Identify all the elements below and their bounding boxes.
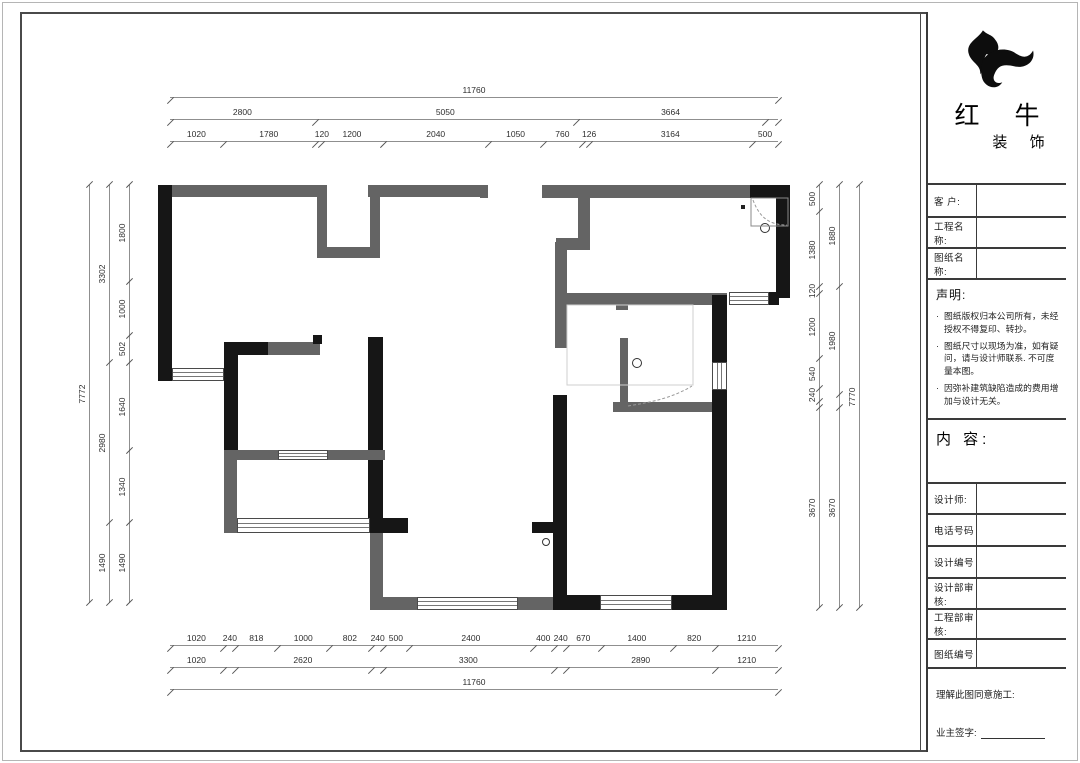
dimension-value: 3664 [576, 106, 765, 118]
dimension-value: 1880 [827, 227, 837, 246]
dimension-segment: 1000 [116, 282, 129, 336]
statement-item: · 图纸版权归本公司所有，未经授权不得复印、转抄。 [936, 310, 1060, 336]
dimension-segment: 3164 [589, 128, 753, 141]
dimension-value: 1400 [601, 632, 673, 644]
title-block: 红 牛 装 饰 客 户: 工程名称: 图纸名称: 声明: · 图纸版权归本公司所… [926, 12, 1066, 752]
dimension-value: 1490 [117, 553, 127, 572]
dimension-segment: 11760 [170, 676, 778, 689]
dimension-value: 1050 [488, 128, 542, 140]
dimension-value: 2890 [566, 654, 715, 666]
wall-structural [158, 185, 172, 381]
wall-existing [368, 185, 488, 197]
dimension-segment: 1880 [826, 185, 839, 287]
statement-item: · 图纸尺寸以现场为准，如有疑问，请与设计师联系. 不可度量本图。 [936, 340, 1060, 378]
field-label: 电话号码 [928, 515, 977, 545]
field-value-phone [977, 515, 1066, 545]
dimension-value: 1980 [827, 332, 837, 351]
wall-existing [560, 293, 727, 305]
dimension-row-top: 11760 [170, 84, 778, 98]
dimension-row-bottom: 11760 [170, 676, 778, 690]
dimension-segment: 3670 [806, 408, 819, 608]
wall-structural [368, 337, 383, 533]
field-value-designer [977, 484, 1066, 513]
dimension-value: 3302 [97, 264, 107, 283]
dimension-value: 1200 [321, 128, 383, 140]
dimension-segment: 500 [806, 185, 819, 212]
dimension-value: 1490 [97, 553, 107, 572]
window-symbol [712, 362, 727, 390]
dimension-segment: 3670 [826, 408, 839, 608]
dimension-row-top: 102017801201200204010507601263164500 [170, 128, 778, 142]
wall-structural [672, 595, 727, 610]
wall-structural [532, 522, 553, 533]
dimension-value: 3164 [589, 128, 753, 140]
statement-box: 声明: · 图纸版权归本公司所有，未经授权不得复印、转抄。 · 图纸尺寸以现场为… [928, 278, 1066, 418]
dimension-value: 240 [807, 388, 817, 402]
dimension-segment: 1400 [601, 632, 673, 645]
dimension-segment: 1490 [116, 523, 129, 603]
dimension-value: 11760 [170, 676, 778, 688]
dimension-segment: 240 [806, 389, 819, 402]
window-symbol [172, 368, 224, 381]
dimension-segment: 1980 [826, 287, 839, 395]
dimension-segment: 240 [371, 632, 383, 645]
field-label: 设计部审核: [928, 579, 977, 608]
dimension-row-bottom: 1020240818100080224050024004002406701400… [170, 632, 778, 646]
wall-structural [553, 395, 567, 610]
wall-existing [620, 338, 628, 408]
dimension-row-bottom: 10202620330028901210 [170, 654, 778, 668]
dimension-segment: 7770 [846, 185, 859, 608]
field-row-customer: 客 户: [928, 183, 1066, 216]
dimension-segment: 2890 [566, 654, 715, 667]
dimension-value: 802 [329, 632, 370, 644]
bull-logo-icon [953, 26, 1041, 98]
dimension-column-left: 330229801490 [96, 185, 110, 603]
dimension-row-top: 280050503664 [170, 106, 778, 120]
dimension-value: 502 [117, 342, 127, 356]
dimension-segment: 11760 [170, 84, 778, 97]
field-row-drawing-name: 图纸名称: [928, 247, 1066, 278]
field-label: 客 户: [928, 185, 977, 216]
dimension-segment: 3300 [383, 654, 554, 667]
dimension-value: 1780 [223, 128, 315, 140]
wall-structural [238, 342, 270, 355]
dimension-segment: 802 [329, 632, 370, 645]
dimension-segment: 2040 [383, 128, 488, 141]
field-value-project-name [977, 218, 1066, 247]
wall-structural [368, 518, 408, 533]
content-label: 内 容: [936, 431, 990, 448]
dimension-value: 240 [371, 632, 383, 644]
dimension-value: 400 [533, 632, 554, 644]
dimension-segment: 500 [383, 632, 409, 645]
dimension-value: 3300 [383, 654, 554, 666]
company-name: 红 牛 [942, 103, 1066, 129]
dimension-value: 2980 [97, 433, 107, 452]
dimension-value: 820 [673, 632, 715, 644]
dimension-value: 670 [566, 632, 601, 644]
dimension-segment: 818 [235, 632, 277, 645]
dimension-value: 7772 [77, 385, 87, 404]
field-label: 图纸编号 [928, 640, 977, 667]
wall-existing [172, 185, 327, 197]
floor-drain [760, 223, 770, 233]
field-value-drawing-name [977, 249, 1066, 278]
dimension-segment: 2800 [170, 106, 315, 119]
dimension-value: 818 [235, 632, 277, 644]
company-name-sub: 装 饰 [980, 131, 1066, 152]
dimension-value: 1210 [715, 654, 778, 666]
wall-existing [224, 450, 278, 460]
field-label: 工程部审核: [928, 610, 977, 638]
bullet-icon: · [936, 382, 944, 408]
dimension-segment: 1210 [715, 654, 778, 667]
dimension-segment: 3664 [576, 106, 765, 119]
dimension-segment: 1490 [96, 523, 109, 603]
field-row-design-number: 设计编号 [928, 545, 1066, 577]
field-row-drawing-number: 图纸编号 [928, 638, 1066, 667]
signature-line [981, 729, 1045, 739]
dimension-value: 2040 [383, 128, 488, 140]
wall-structural [553, 595, 600, 610]
field-label: 工程名称: [928, 218, 977, 247]
dimension-segment: 240 [223, 632, 235, 645]
dimension-value: 7770 [847, 387, 857, 406]
wall-structural [776, 185, 790, 298]
dimension-value: 540 [807, 367, 817, 381]
dimension-segment: 240 [554, 632, 566, 645]
dimension-value: 1380 [807, 240, 817, 259]
dimension-value: 240 [554, 632, 566, 644]
field-row-phone: 电话号码 [928, 513, 1066, 545]
dimension-segment [223, 654, 235, 667]
floor-drain [542, 538, 550, 546]
title-block-divider-line [920, 12, 921, 752]
dimension-value: 1800 [117, 224, 127, 243]
window-symbol [417, 597, 518, 610]
bullet-icon: · [936, 310, 944, 336]
dimension-column-right: 7770 [846, 185, 860, 608]
dimension-value: 2620 [235, 654, 370, 666]
dimension-segment: 820 [673, 632, 715, 645]
dimension-segment: 2980 [96, 363, 109, 523]
dimension-segment: 1780 [223, 128, 315, 141]
dimension-value: 2400 [409, 632, 533, 644]
drawing-sheet: 1176028005050366410201780120120020401050… [0, 0, 1080, 763]
window-symbol [729, 292, 769, 305]
dimension-value: 11760 [170, 84, 778, 96]
statement-text: 图纸尺寸以现场为准，如有疑问，请与设计师联系. 不可度量本图。 [944, 340, 1060, 378]
dimension-segment [826, 395, 839, 408]
dimension-value: 1000 [277, 632, 329, 644]
field-label: 图纸名称: [928, 249, 977, 278]
window-symbol [237, 518, 370, 533]
dimension-segment [765, 106, 778, 119]
content-box: 内 容: [928, 418, 1066, 482]
field-row-project-name: 工程名称: [928, 216, 1066, 247]
wall-existing [370, 533, 383, 598]
dimension-segment [554, 654, 566, 667]
dimension-segment: 502 [116, 336, 129, 363]
field-row-design-review: 设计部审核: [928, 577, 1066, 608]
dimension-column-left: 18001000502164013401490 [116, 185, 130, 603]
floor-drain [632, 358, 642, 368]
statement-text: 图纸版权归本公司所有，未经授权不得复印、转抄。 [944, 310, 1060, 336]
window-symbol [600, 595, 672, 610]
dimension-segment: 2620 [235, 654, 370, 667]
dimension-segment: 1000 [277, 632, 329, 645]
dimension-value: 500 [807, 192, 817, 206]
dimension-segment: 1200 [321, 128, 383, 141]
dimension-segment: 7772 [76, 185, 89, 603]
field-label: 设计编号 [928, 547, 977, 577]
statement-item: · 因弥补建筑缺陷造成的费用增加与设计无关。 [936, 382, 1060, 408]
wall-existing [224, 518, 237, 533]
signature-box: 理解此图同意施工: 业主签字: [928, 667, 1066, 752]
statement-title: 声明: [936, 286, 1060, 303]
wall-existing [328, 450, 385, 460]
dimension-value: 3670 [807, 499, 817, 518]
dimension-segment: 1200 [806, 294, 819, 359]
field-value-design-number [977, 547, 1066, 577]
dimension-value: 1640 [117, 397, 127, 416]
dimension-segment: 3302 [96, 185, 109, 363]
wall-existing [370, 197, 380, 258]
dimension-column-right: 500138012012005402403670 [806, 185, 820, 608]
dimension-value: 3670 [827, 499, 837, 518]
dimension-value: 1200 [807, 317, 817, 336]
field-value-engineering-review [977, 610, 1066, 638]
dimension-value: 1020 [170, 128, 223, 140]
dimension-segment: 1800 [116, 185, 129, 282]
dimension-segment: 1050 [488, 128, 542, 141]
field-row-engineering-review: 工程部审核: [928, 608, 1066, 638]
dimension-value: 1020 [170, 632, 223, 644]
dimension-segment: 1210 [715, 632, 778, 645]
dimension-segment [371, 654, 383, 667]
dimension-segment: 670 [566, 632, 601, 645]
field-value-customer [977, 185, 1066, 216]
wall-structural [769, 292, 779, 305]
dimension-segment: 400 [533, 632, 554, 645]
field-value-design-review [977, 579, 1066, 608]
dimension-column-left: 7772 [76, 185, 90, 603]
dimension-segment: 540 [806, 359, 819, 388]
dimension-segment: 1640 [116, 363, 129, 451]
field-value-drawing-number [977, 640, 1066, 667]
wall-existing [370, 597, 417, 610]
dimension-column-right: 188019803670 [826, 185, 840, 608]
wall-structural [313, 335, 322, 344]
wall-existing [616, 303, 628, 310]
wall-existing [613, 402, 713, 412]
dimension-segment: 5050 [315, 106, 576, 119]
dimension-segment: 760 [543, 128, 582, 141]
field-row-designer: 设计师: [928, 482, 1066, 513]
wall-structural [224, 342, 238, 458]
signature-agreement-text: 理解此图同意施工: [936, 687, 1060, 701]
wall-existing [518, 597, 553, 610]
dimension-segment: 1380 [806, 212, 819, 287]
statement-text: 因弥补建筑缺陷造成的费用增加与设计无关。 [944, 382, 1060, 408]
wall-existing [542, 185, 752, 198]
dimension-value: 1340 [117, 477, 127, 496]
field-label: 设计师: [928, 484, 977, 513]
dimension-value: 5050 [315, 106, 576, 118]
owner-signature-label: 业主签字: [936, 725, 977, 739]
dimension-segment: 1340 [116, 451, 129, 523]
dimension-value: 1000 [117, 299, 127, 318]
window-symbol [278, 450, 328, 460]
dimension-segment: 1020 [170, 632, 223, 645]
bullet-icon: · [936, 340, 944, 378]
dimension-segment: 500 [752, 128, 778, 141]
company-logo: 红 牛 装 饰 [928, 12, 1066, 183]
dimension-segment: 1020 [170, 654, 223, 667]
dimension-value: 240 [223, 632, 235, 644]
dimension-value: 1210 [715, 632, 778, 644]
dimension-segment: 1020 [170, 128, 223, 141]
dimension-value: 760 [543, 128, 582, 140]
wall-existing [480, 185, 488, 198]
dimension-value: 500 [752, 128, 778, 140]
dimension-value: 500 [383, 632, 409, 644]
dimension-segment: 2400 [409, 632, 533, 645]
wall-structural [712, 390, 727, 595]
dimension-value: 1020 [170, 654, 223, 666]
dimension-value: 2800 [170, 106, 315, 118]
wall-structural [712, 295, 727, 362]
